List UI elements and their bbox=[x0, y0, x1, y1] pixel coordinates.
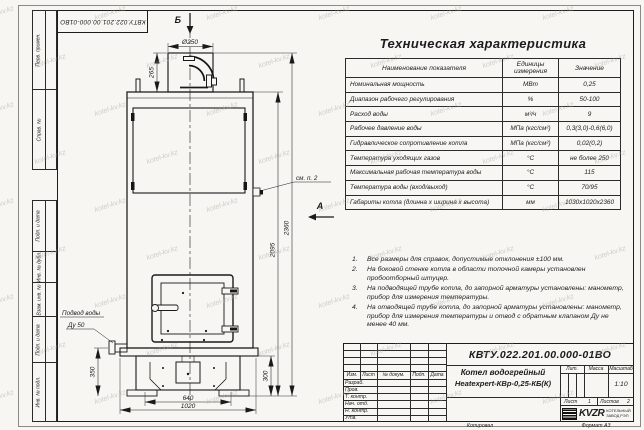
footer-copied-label: Копировал bbox=[440, 423, 520, 429]
spec-header-value: Значение bbox=[559, 59, 621, 78]
spec-table-row: Температура воды (вход/выход)°С70/95 bbox=[346, 180, 621, 195]
scale-value: 1:10 bbox=[608, 381, 634, 388]
spec-cell-units: МПа (кгс/см²) bbox=[503, 122, 559, 137]
lifting-lug-left bbox=[136, 79, 140, 92]
spec-cell-name: Максимальная рабочая температура воды bbox=[346, 166, 503, 181]
sheets-value: 2 bbox=[627, 399, 630, 405]
spec-cell-value: 50-100 bbox=[559, 92, 621, 107]
spec-cell-name: Номинальная мощность bbox=[346, 78, 503, 93]
row-utv: Утв. bbox=[344, 415, 377, 422]
spec-table-row: Габариты котла (длинна х ширина х высота… bbox=[346, 195, 621, 210]
view-a-label: А bbox=[316, 201, 324, 211]
spec-cell-value: 70/95 bbox=[559, 180, 621, 195]
row-t-kontr: Т. контр. bbox=[344, 393, 377, 400]
upper-access-panel bbox=[133, 108, 245, 193]
note-item: 2.На боковой стенке котла в области топо… bbox=[352, 266, 624, 283]
scale-label: Масштаб bbox=[608, 366, 634, 372]
note-item: 4.На отводящей трубе котла, до запорной … bbox=[352, 304, 624, 330]
product-name-line2: Heatexpert-КВр-0,25-КБ(К) bbox=[446, 379, 560, 388]
signature-row-labels: Разраб. Пров. Т. контр. Нач. отд. Н. кон… bbox=[344, 379, 377, 422]
spec-table-row: Диапазон рабочего регулирования%50-100 bbox=[346, 92, 621, 107]
row-razrab: Разраб. bbox=[344, 379, 377, 386]
title-block-doc-number: КВТУ.022.201.00.000-01ВО bbox=[447, 345, 633, 365]
col-podp: Подп. bbox=[411, 372, 427, 378]
note-item: 1.Все размеры для справок, допустимые от… bbox=[352, 256, 624, 265]
spec-cell-units: МВт bbox=[503, 78, 559, 93]
view-b-label: Б bbox=[175, 15, 182, 25]
dim-total-height: 2360 bbox=[284, 220, 291, 236]
sheet-value: 1 bbox=[588, 399, 591, 405]
spec-cell-value: 115 bbox=[559, 166, 621, 181]
water-inlet-flange bbox=[109, 341, 115, 354]
spec-cell-value: 0,25 bbox=[559, 78, 621, 93]
water-inlet-label-1: Подвод воды bbox=[62, 309, 101, 317]
dim-outer-width: 1020 bbox=[181, 403, 196, 410]
dim-chimney-dia: Ø250 bbox=[181, 39, 198, 46]
spec-cell-units: % bbox=[503, 92, 559, 107]
dim-chimney-height: 265 bbox=[149, 67, 156, 79]
sampling-fitting bbox=[253, 188, 260, 196]
spec-cell-name: Температура уходящих газов bbox=[346, 151, 503, 166]
product-name-line1: Котел водогрейный bbox=[446, 368, 560, 377]
drawing-sheet: Перв. примен. Справ. № Подп. и дата Инв.… bbox=[0, 0, 644, 430]
door-handle bbox=[156, 305, 178, 311]
spec-cell-units: МПа (кгс/см²) bbox=[503, 136, 559, 151]
lit-label: Лит. bbox=[560, 366, 584, 372]
row-prov: Пров. bbox=[344, 386, 377, 393]
lifting-lug-right bbox=[240, 79, 244, 92]
spec-table-row: Максимальная рабочая температура воды°С1… bbox=[346, 166, 621, 181]
spec-table: Наименование показателя Единицы измерени… bbox=[345, 58, 621, 210]
spec-table-row: Температура уходящих газов°Сне более 250 bbox=[346, 151, 621, 166]
spec-cell-value: 0,02(0,2) bbox=[559, 136, 621, 151]
manufacturer-logo: KVZR КОТЕЛЬНЫЙ ЗАВОД РЭП bbox=[562, 406, 634, 421]
spec-cell-units: °С bbox=[503, 151, 559, 166]
spec-cell-value: 0,3(3,0)-0,6(6,0) bbox=[559, 122, 621, 137]
spec-cell-name: Рабочее давление воды bbox=[346, 122, 503, 137]
footer-format-label: Формат А3 bbox=[566, 423, 626, 429]
spec-cell-value: 9 bbox=[559, 107, 621, 122]
spec-header-units: Единицы измерения bbox=[503, 59, 559, 78]
spec-cell-units: °С bbox=[503, 166, 559, 181]
kvzr-logo-caption: КОТЕЛЬНЫЙ ЗАВОД РЭП bbox=[606, 409, 630, 418]
col-izm: Изм. bbox=[344, 372, 360, 378]
sheet-label: Лист bbox=[564, 399, 577, 405]
spec-table-row: Гидравлическое сопротивление котлаМПа (к… bbox=[346, 136, 621, 151]
row-n-kontr: Н. контр. bbox=[344, 408, 377, 415]
spec-cell-units: мм bbox=[503, 195, 559, 210]
see-note-callout: см. п. 2 bbox=[296, 175, 318, 182]
spec-cell-value: 1030х1020х2360 bbox=[559, 195, 621, 210]
col-data: Дата bbox=[429, 372, 445, 378]
spec-cell-name: Гидравлическое сопротивление котла bbox=[346, 136, 503, 151]
spec-table-row: Номинальная мощностьМВт0,25 bbox=[346, 78, 621, 93]
spec-cell-name: Расход воды bbox=[346, 107, 503, 122]
base-plate bbox=[120, 348, 258, 356]
foot-pad-right bbox=[219, 390, 249, 396]
mass-label: Масса bbox=[584, 366, 608, 372]
water-inlet-label-2: Ду 50 bbox=[67, 322, 85, 329]
foot-pad-left bbox=[127, 390, 157, 396]
dim-inner-width: 640 bbox=[183, 395, 194, 402]
ash-opening bbox=[176, 362, 200, 383]
spec-table-body: Номинальная мощностьМВт0,25Диапазон рабо… bbox=[346, 78, 621, 210]
note-item: 3.На подводящей трубе котла, до запорной… bbox=[352, 285, 624, 302]
spec-table-row: Расход водым³/ч9 bbox=[346, 107, 621, 122]
spec-cell-name: Диапазон рабочего регулирования bbox=[346, 92, 503, 107]
spec-table-row: Рабочее давление водыМПа (кгс/см²)0,3(3,… bbox=[346, 122, 621, 137]
notes-list: 1.Все размеры для справок, допустимые от… bbox=[352, 256, 624, 332]
col-list: Лист bbox=[361, 372, 376, 378]
sheets-label: Листов bbox=[600, 399, 619, 405]
col-docnum: № докум. bbox=[378, 372, 409, 378]
spec-cell-units: м³/ч bbox=[503, 107, 559, 122]
spec-cell-name: Температура воды (вход/выход) bbox=[346, 180, 503, 195]
spec-cell-units: °С bbox=[503, 180, 559, 195]
kvzr-logo-text: KVZR bbox=[579, 408, 604, 419]
kvzr-logo-icon bbox=[562, 408, 577, 420]
spec-cell-name: Габариты котла (длинна х ширина х высота… bbox=[346, 195, 503, 210]
spec-table-title: Техническая характеристика bbox=[352, 36, 614, 51]
spec-header-name: Наименование показателя bbox=[346, 59, 503, 78]
dim-body-height: 2095 bbox=[270, 242, 277, 258]
spec-cell-value: не более 250 bbox=[559, 151, 621, 166]
dim-inlet-height: 350 bbox=[90, 366, 97, 377]
dim-base-height: 300 bbox=[263, 370, 270, 381]
row-nach-otd: Нач. отд. bbox=[344, 401, 377, 408]
